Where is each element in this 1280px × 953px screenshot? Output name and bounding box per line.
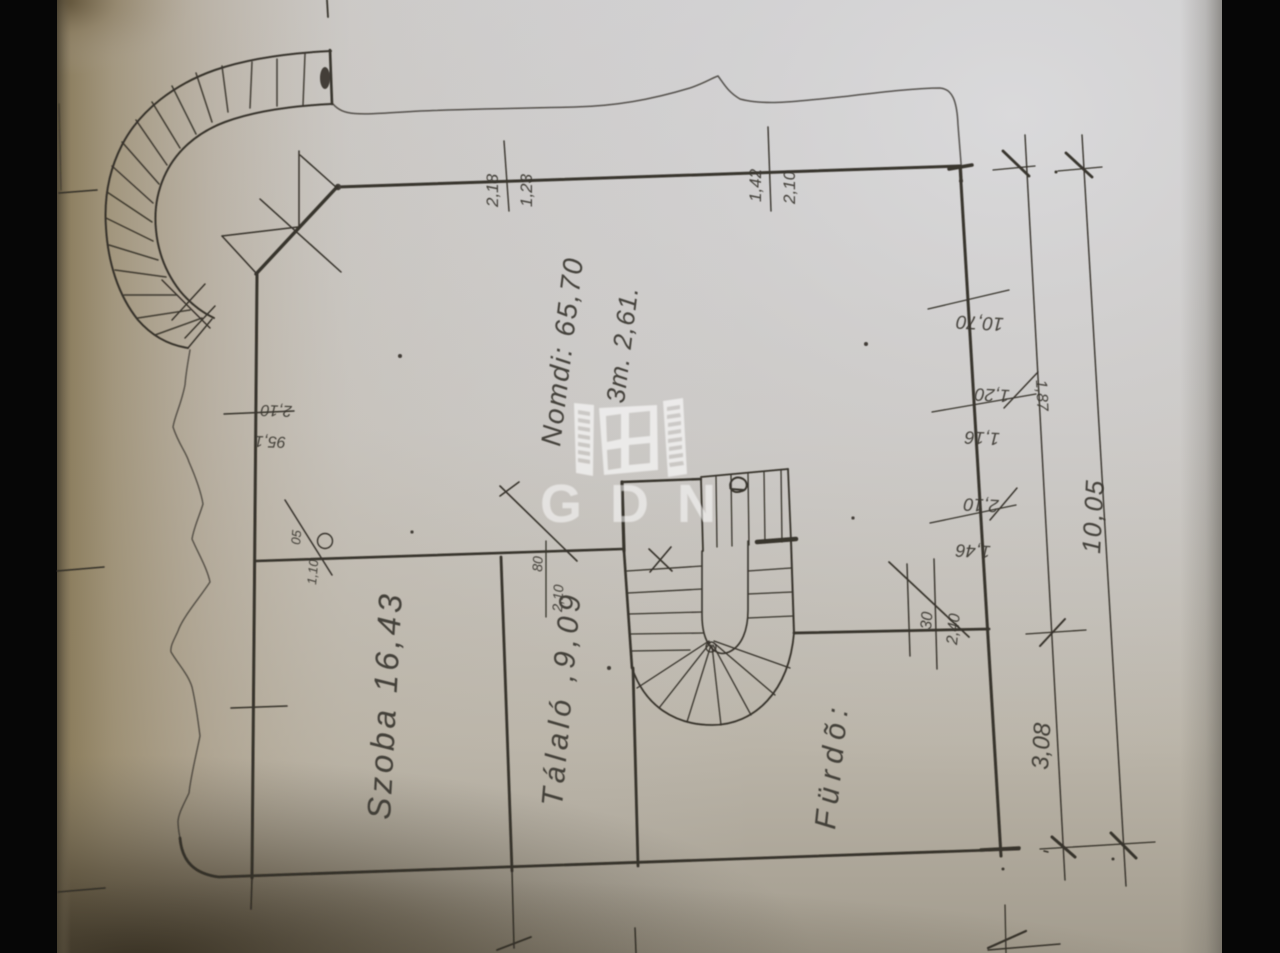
svg-text:05: 05 bbox=[288, 529, 304, 545]
svg-text:2,40: 2,40 bbox=[944, 613, 964, 647]
svg-text:3,08: 3,08 bbox=[1027, 722, 1056, 771]
svg-text:1,87: 1,87 bbox=[1032, 379, 1051, 412]
svg-text:2,10: 2,10 bbox=[549, 584, 566, 613]
svg-text:1,10: 1,10 bbox=[304, 558, 321, 585]
svg-text:1,16: 1,16 bbox=[963, 427, 1000, 449]
svg-text:2,10: 2,10 bbox=[260, 401, 293, 419]
svg-text:2,10: 2,10 bbox=[963, 494, 1000, 516]
svg-text:30: 30 bbox=[918, 611, 936, 630]
svg-text:2,18: 2,18 bbox=[483, 173, 502, 208]
svg-text:1,42: 1,42 bbox=[746, 168, 765, 202]
svg-text:10,70: 10,70 bbox=[955, 310, 1004, 333]
svg-text:10,05: 10,05 bbox=[1076, 478, 1110, 555]
svg-text:95,1: 95,1 bbox=[254, 432, 286, 450]
svg-text:1,46: 1,46 bbox=[954, 540, 991, 562]
svg-text:80: 80 bbox=[529, 556, 546, 573]
svg-text:1,23: 1,23 bbox=[517, 173, 536, 207]
svg-text:2,10: 2,10 bbox=[780, 170, 799, 205]
svg-text:1,20: 1,20 bbox=[974, 384, 1010, 406]
svg-text:GDN: GDN bbox=[540, 474, 744, 534]
